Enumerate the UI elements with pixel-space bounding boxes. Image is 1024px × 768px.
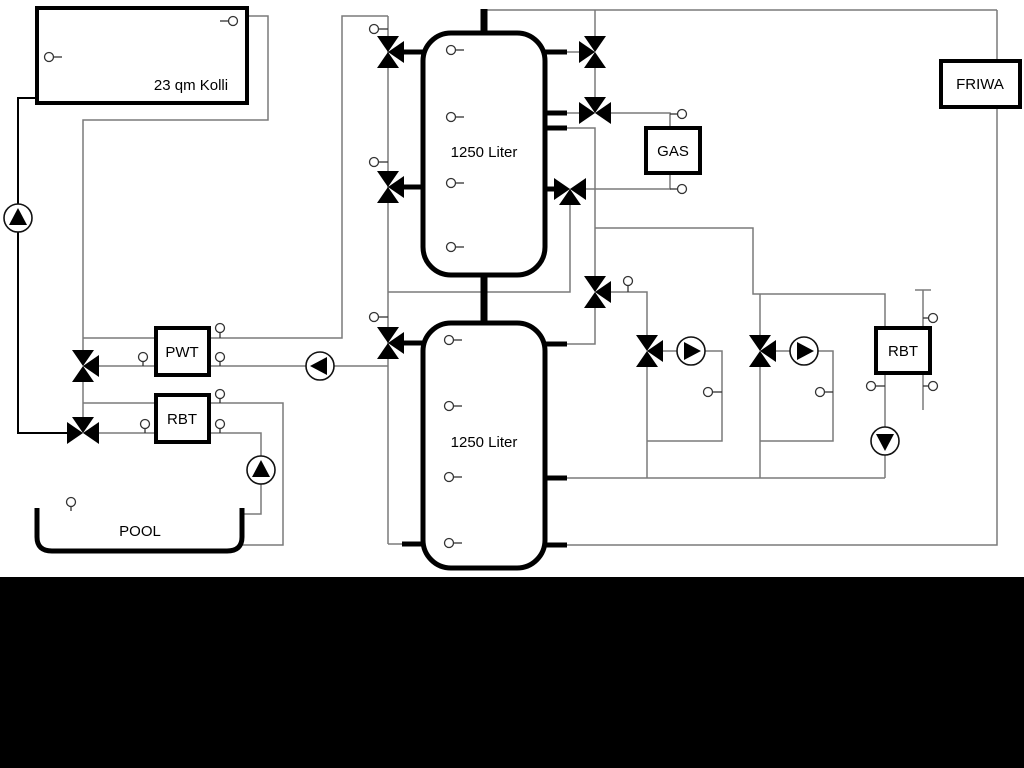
- solar-pump-icon: [4, 204, 32, 232]
- tank-1-label: 1250 Liter: [451, 144, 518, 161]
- collector-label: 23 qm Kolli: [154, 77, 228, 94]
- tank-2-label: 1250 Liter: [451, 434, 518, 451]
- gas-label: GAS: [657, 143, 689, 160]
- bottom-black-band: [0, 577, 1024, 768]
- rbt-left-label: RBT: [167, 411, 197, 428]
- heating-circuit-1-pump-icon: [677, 337, 705, 365]
- hydraulic-diagram: 23 qm Kolli 1250 Liter 1250 Liter GAS FR…: [0, 0, 1024, 768]
- rbt-right-pump-icon: [871, 427, 899, 455]
- heating-circuit-2-pump-icon: [790, 337, 818, 365]
- rbt-right-label: RBT: [888, 343, 918, 360]
- pool-label: POOL: [119, 523, 161, 540]
- schematic-page: 23 qm Kolli 1250 Liter 1250 Liter GAS FR…: [0, 0, 1024, 768]
- pool-pump-icon: [247, 456, 275, 484]
- pwt-charge-pump-icon: [306, 352, 334, 380]
- friwa-label: FRIWA: [956, 76, 1004, 93]
- pwt-label: PWT: [165, 344, 198, 361]
